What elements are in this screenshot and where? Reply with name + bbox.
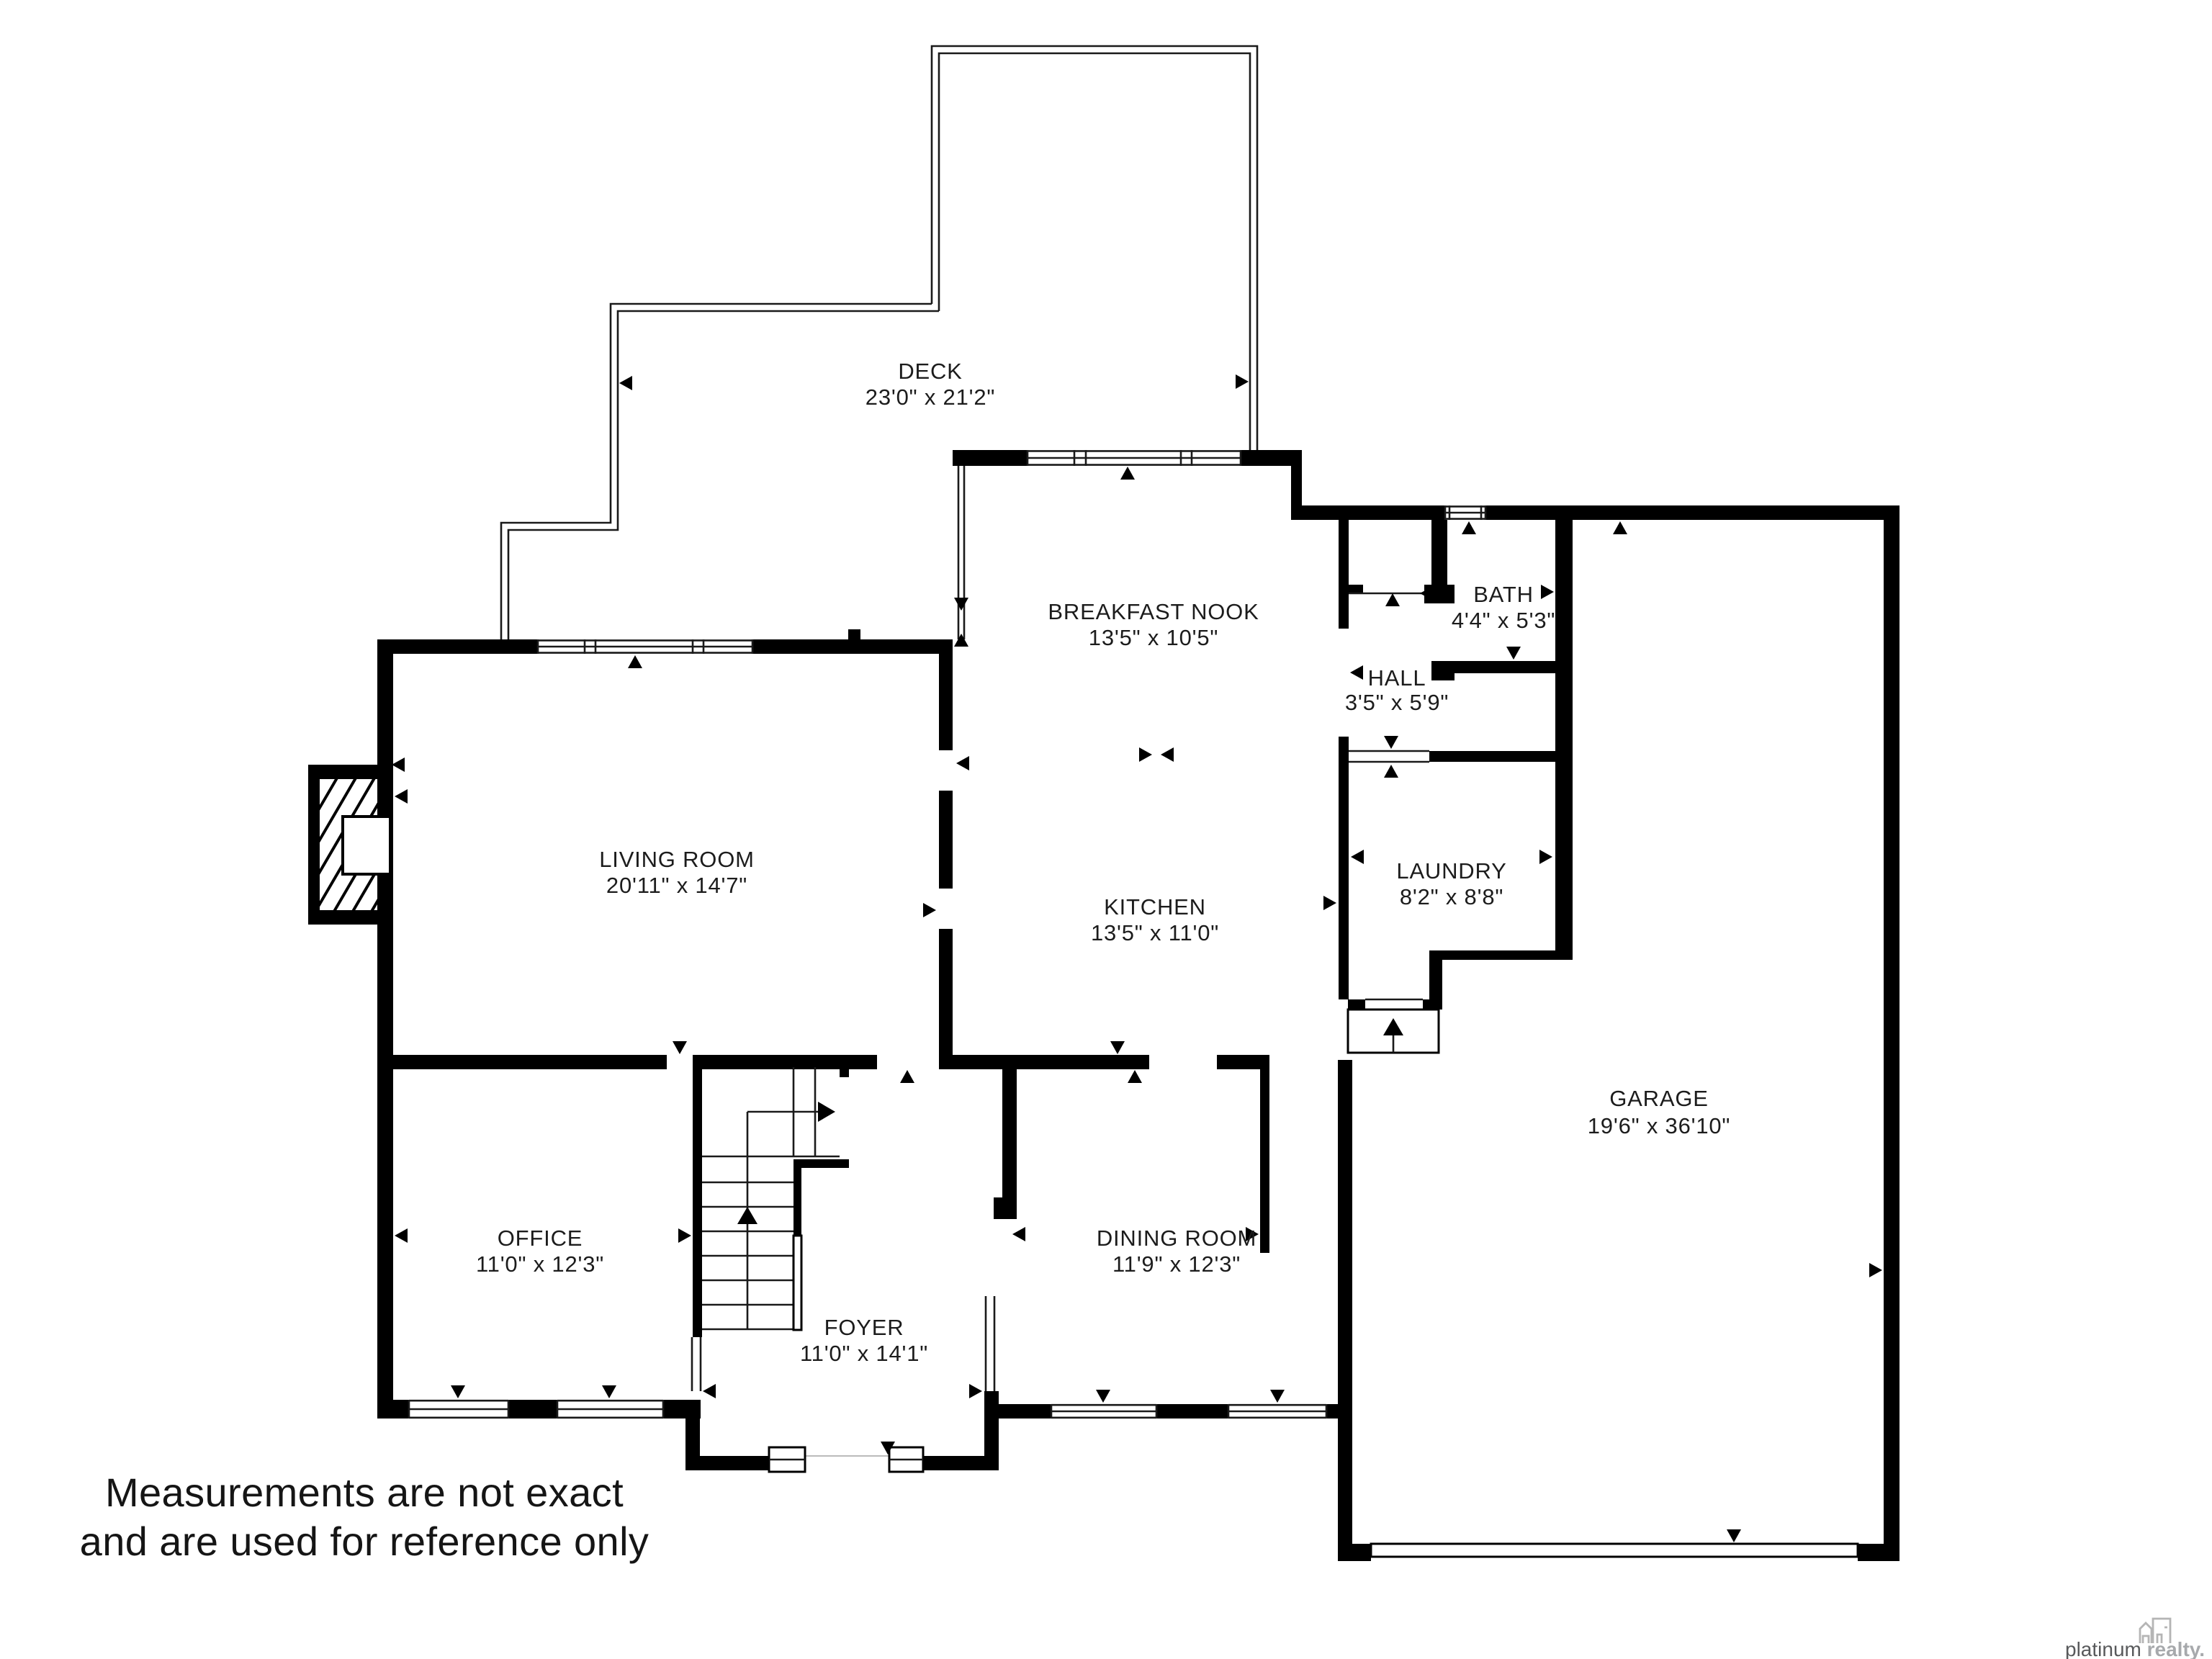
stairs-up-arrow [737, 1207, 757, 1224]
svg-text:OFFICE: OFFICE [498, 1226, 583, 1251]
floorplan-canvas: DECK 23'0" x 21'2" BREAKFAST NOOK 13'5" … [0, 0, 2212, 1659]
disclaimer-text: Measurements are not exact and are used … [80, 1470, 649, 1564]
deck-outline [501, 46, 1257, 639]
svg-text:GARAGE: GARAGE [1609, 1086, 1708, 1111]
svg-text:platinum realty.: platinum realty. [2065, 1638, 2205, 1659]
stairs-direction-arrow [818, 1102, 835, 1122]
room-label-deck: DECK 23'0" x 21'2" [866, 359, 995, 410]
svg-text:4'4" x 5'3": 4'4" x 5'3" [1452, 608, 1555, 633]
staircase [702, 1067, 849, 1330]
firebox [343, 817, 390, 874]
svg-text:3'5" x 5'9": 3'5" x 5'9" [1345, 690, 1449, 715]
breakfast-nook-windows [1028, 450, 1241, 466]
stair-railing [793, 1236, 801, 1330]
room-label-office: OFFICE 11'0" x 12'3" [476, 1226, 604, 1277]
platinum-realty-logo: platinum realty. [2065, 1619, 2205, 1659]
svg-text:11'0" x 14'1": 11'0" x 14'1" [800, 1341, 928, 1366]
office-bottom-wall [377, 1400, 701, 1419]
svg-text:DECK: DECK [898, 359, 962, 384]
room-label-foyer: FOYER 11'0" x 14'1" [800, 1315, 928, 1366]
deck-dim-arrow-right [1236, 374, 1249, 389]
svg-text:BATH: BATH [1473, 582, 1534, 607]
room-label-living-room: LIVING ROOM 20'11" x 14'7" [599, 847, 755, 898]
svg-text:8'2" x 8'8": 8'2" x 8'8" [1400, 884, 1503, 909]
deck-dim-arrow-left [619, 376, 632, 390]
svg-text:13'5" x 11'0": 13'5" x 11'0" [1091, 920, 1219, 945]
svg-text:LIVING ROOM: LIVING ROOM [599, 847, 755, 872]
bath-window [1445, 505, 1485, 520]
fireplace [245, 763, 495, 936]
svg-text:HALL: HALL [1368, 665, 1426, 691]
svg-text:DINING ROOM: DINING ROOM [1097, 1226, 1256, 1251]
svg-text:11'0" x 12'3": 11'0" x 12'3" [476, 1251, 604, 1277]
room-label-bath: BATH 4'4" x 5'3" [1452, 582, 1555, 633]
room-label-breakfast-nook: BREAKFAST NOOK 13'5" x 10'5" [1048, 599, 1259, 650]
svg-text:13'5" x 10'5": 13'5" x 10'5" [1089, 625, 1218, 650]
svg-text:FOYER: FOYER [824, 1315, 904, 1340]
garage-door [1371, 1544, 1858, 1557]
svg-text:KITCHEN: KITCHEN [1104, 894, 1206, 920]
svg-text:Measurements are not exact: Measurements are not exact [105, 1470, 624, 1515]
room-label-laundry: LAUNDRY 8'2" x 8'8" [1396, 858, 1506, 909]
dining-bottom-wall [999, 1404, 1338, 1419]
room-label-kitchen: KITCHEN 13'5" x 11'0" [1091, 894, 1219, 945]
room-label-dining-room: DINING ROOM 11'9" x 12'3" [1097, 1226, 1256, 1277]
svg-text:11'9" x 12'3": 11'9" x 12'3" [1112, 1251, 1241, 1277]
svg-text:and are used for reference onl: and are used for reference only [80, 1519, 649, 1564]
svg-text:23'0" x 21'2": 23'0" x 21'2" [866, 385, 995, 410]
hall-laundry-details [1348, 593, 1439, 1053]
svg-text:BREAKFAST NOOK: BREAKFAST NOOK [1048, 599, 1259, 624]
living-room-windows [538, 639, 752, 654]
breakfast-west-window [958, 466, 964, 639]
floorplan-page: DECK 23'0" x 21'2" BREAKFAST NOOK 13'5" … [0, 0, 2212, 1659]
svg-text:20'11" x 14'7": 20'11" x 14'7" [606, 873, 747, 898]
svg-text:LAUNDRY: LAUNDRY [1396, 858, 1506, 884]
room-label-garage: GARAGE 19'6" x 36'10" [1588, 1086, 1730, 1138]
svg-text:19'6" x 36'10": 19'6" x 36'10" [1588, 1113, 1730, 1138]
